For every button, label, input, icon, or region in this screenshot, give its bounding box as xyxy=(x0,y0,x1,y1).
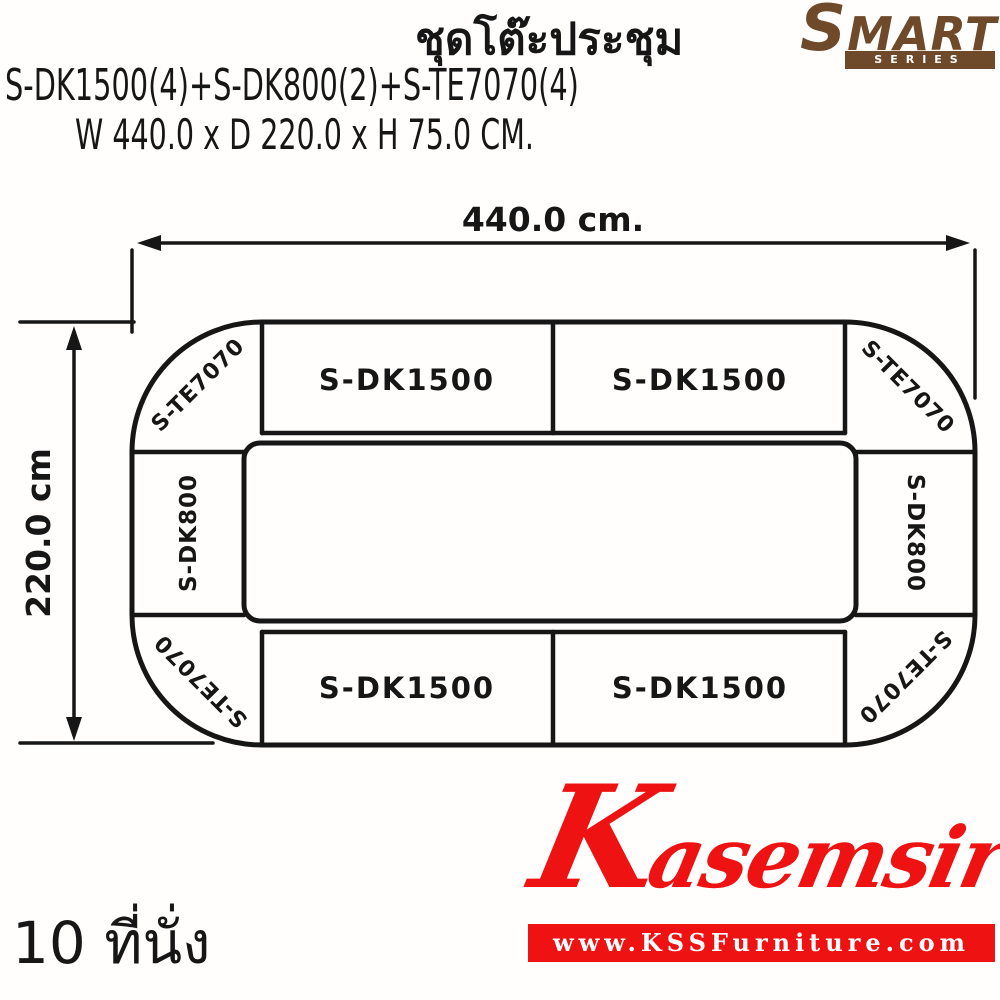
arrow-right-icon xyxy=(946,235,970,251)
kss-website-banner: www.KSSFurniture.com xyxy=(528,924,995,962)
segment-label-bottom-1: S-DK1500 xyxy=(319,671,495,705)
corner-label-bottom-left: S-TE7070 xyxy=(150,629,253,732)
segment-label-bottom-2: S-DK1500 xyxy=(612,671,788,705)
arrow-down-icon xyxy=(66,717,82,741)
kasemsiri-script-rest: asemsiri xyxy=(640,808,1000,907)
side-dividers xyxy=(132,452,975,615)
depth-dimension-label: 220.0 cm xyxy=(19,448,58,618)
corner-label-top-right: S-TE7070 xyxy=(856,336,959,439)
kasemsiri-logo: Kasemsiri xyxy=(520,778,1000,918)
segment-label-right-side: S-DK800 xyxy=(902,474,928,592)
segment-label-left-side: S-DK800 xyxy=(176,474,202,592)
corner-label-top-left: S-TE7070 xyxy=(147,334,250,437)
width-dimension-label: 440.0 cm. xyxy=(462,200,644,239)
table-outline xyxy=(132,322,975,745)
seats-label: 10 ที่นั่ง xyxy=(12,896,210,989)
segment-label-top-2: S-DK1500 xyxy=(612,363,788,397)
segment-label-top-1: S-DK1500 xyxy=(319,363,495,397)
table-inner-opening xyxy=(244,443,856,621)
arrow-left-icon xyxy=(137,235,161,251)
corner-label-bottom-right: S-TE7070 xyxy=(853,625,956,728)
arrow-up-icon xyxy=(66,326,82,350)
